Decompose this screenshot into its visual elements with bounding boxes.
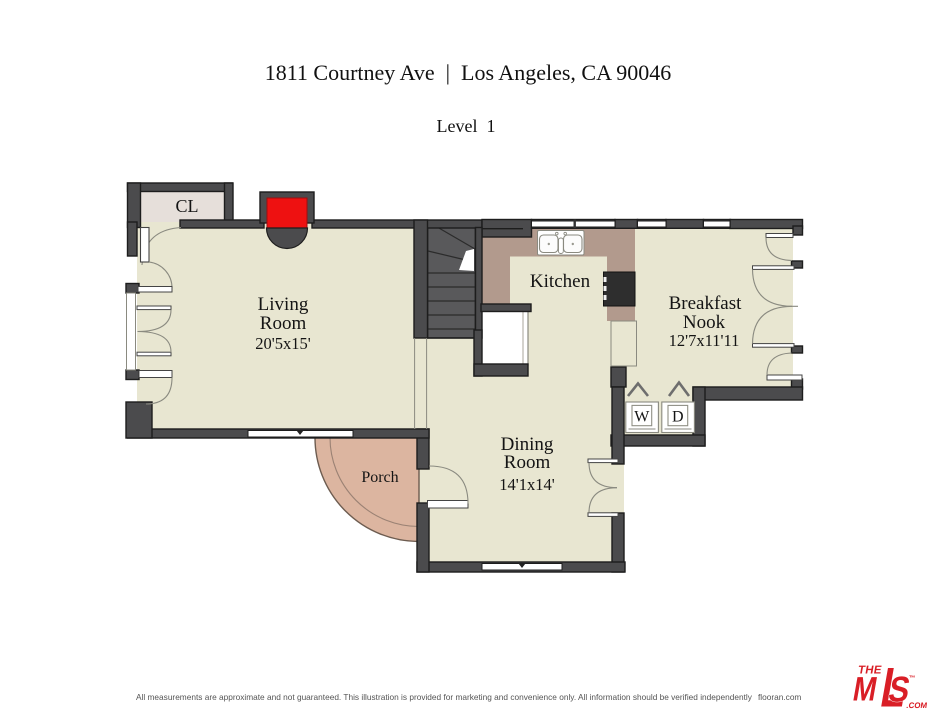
svg-text:Kitchen: Kitchen <box>530 271 591 292</box>
svg-text:Porch: Porch <box>361 469 398 486</box>
svg-text:1811 Courtney Ave | Los Ange: 1811 Courtney Ave | Los Angeles, CA 9004… <box>265 60 672 85</box>
svg-text:Room: Room <box>504 452 551 473</box>
svg-text:.COM: .COM <box>906 701 928 710</box>
svg-text:14'1x14': 14'1x14' <box>499 475 554 494</box>
svg-text:Nook: Nook <box>683 312 726 333</box>
svg-text:Room: Room <box>260 313 307 334</box>
svg-text:20'5x15': 20'5x15' <box>255 334 310 353</box>
svg-text:W: W <box>634 409 650 426</box>
svg-text:™: ™ <box>909 675 916 682</box>
svg-text:D: D <box>672 409 684 426</box>
svg-text:All measurements are approxima: All measurements are approximate and not… <box>136 692 753 702</box>
svg-text:Level 1: Level 1 <box>437 116 496 136</box>
svg-text:Living: Living <box>258 294 309 315</box>
svg-text:Breakfast: Breakfast <box>669 293 743 314</box>
svg-text:CL: CL <box>175 196 198 216</box>
svg-text:flooran.com: flooran.com <box>758 692 801 702</box>
svg-text:12'7x11'11: 12'7x11'11 <box>669 331 740 350</box>
